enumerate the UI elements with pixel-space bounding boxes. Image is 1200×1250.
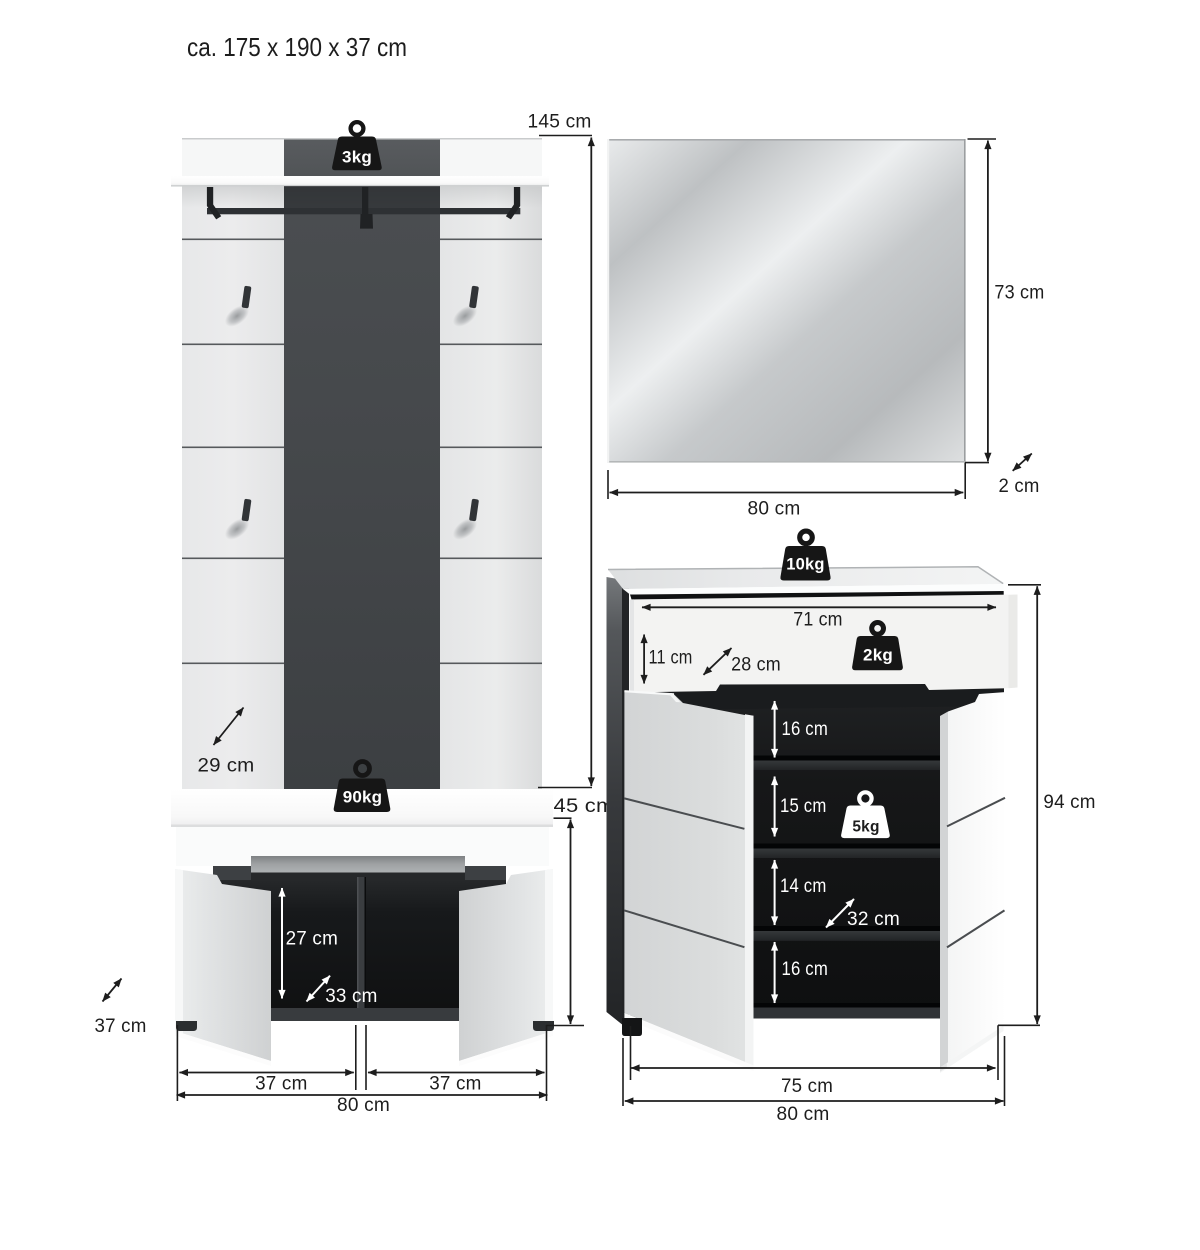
svg-text:80 cm: 80 cm	[748, 499, 801, 520]
svg-text:16 cm: 16 cm	[782, 719, 829, 740]
svg-text:3kg: 3kg	[342, 148, 372, 167]
svg-text:94 cm: 94 cm	[1043, 792, 1095, 813]
svg-text:80 cm: 80 cm	[337, 1095, 390, 1116]
svg-text:73 cm: 73 cm	[994, 283, 1044, 304]
svg-text:71 cm: 71 cm	[793, 610, 842, 631]
svg-text:33 cm: 33 cm	[325, 986, 377, 1007]
svg-text:37 cm: 37 cm	[429, 1074, 481, 1095]
svg-text:45 cm: 45 cm	[554, 796, 615, 817]
svg-text:15 cm: 15 cm	[780, 796, 827, 817]
svg-text:37 cm: 37 cm	[95, 1016, 147, 1037]
svg-text:5kg: 5kg	[852, 819, 879, 836]
svg-text:28 cm: 28 cm	[731, 655, 781, 676]
svg-text:29 cm: 29 cm	[198, 756, 255, 777]
svg-text:16 cm: 16 cm	[782, 959, 829, 980]
svg-text:27 cm: 27 cm	[286, 929, 338, 950]
svg-text:80 cm: 80 cm	[777, 1104, 830, 1125]
svg-text:11 cm: 11 cm	[649, 648, 693, 669]
svg-text:14 cm: 14 cm	[780, 876, 827, 897]
svg-text:37 cm: 37 cm	[255, 1074, 307, 1095]
svg-text:ca. 175 x 190 x 37 cm: ca. 175 x 190 x 37 cm	[187, 32, 407, 62]
svg-text:2 cm: 2 cm	[999, 476, 1040, 497]
svg-text:2kg: 2kg	[863, 646, 893, 665]
svg-text:32 cm: 32 cm	[847, 909, 900, 930]
svg-text:145 cm: 145 cm	[528, 112, 592, 133]
svg-text:75 cm: 75 cm	[781, 1076, 833, 1097]
svg-text:10kg: 10kg	[786, 556, 824, 574]
svg-text:90kg: 90kg	[343, 788, 383, 807]
